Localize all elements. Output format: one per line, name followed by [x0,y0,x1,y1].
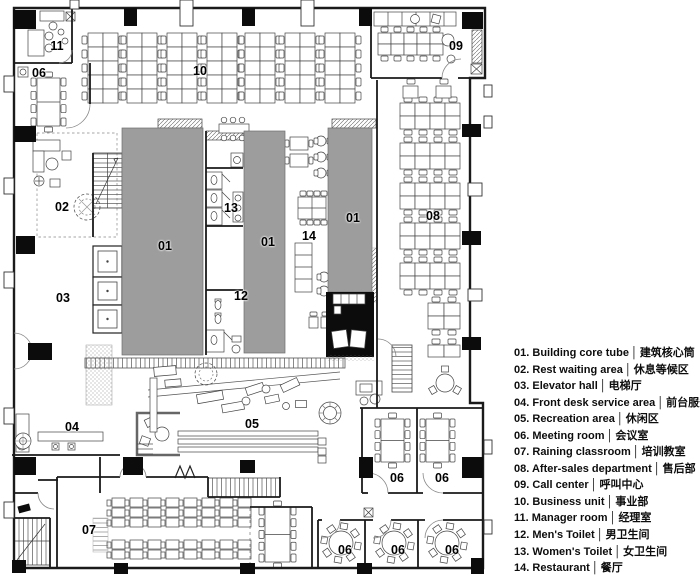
legend-en: Recreation area [532,413,615,425]
legend-num: 10 [514,496,526,508]
legend-item-08: 08. After-sales department│售后部 [514,461,700,478]
legend-sep: │ [600,380,607,392]
legend-item-13: 13. Women's Toilet│女卫生间 [514,544,700,561]
legend-item-09: 09. Call center│呼叫中心 [514,477,700,494]
legend-sep: │ [654,463,661,475]
legend-num: 11 [514,512,526,524]
utility-room-black [326,292,374,361]
legend-en: Building core tube [532,347,629,359]
legend-item-05: 05. Recreation area│休闲区 [514,411,700,428]
legend-sep: │ [592,562,599,574]
legend-item-06: 06. Meeting room│会议室 [514,428,700,445]
legend-zh: 售后部 [663,463,696,475]
legend-zh: 经理室 [618,512,651,524]
legend-sep: │ [617,413,624,425]
legend-sep: │ [607,430,614,442]
legend-sep: │ [614,546,621,558]
legend-item-12: 12. Men's Toilet│男卫生间 [514,527,700,544]
legend-num: 03 [514,380,526,392]
legend-num: 13 [514,546,526,558]
legend-num: 14 [514,562,526,574]
legend-item-01: 01. Building core tube│建筑核心筒 [514,345,700,362]
legend-item-11: 11. Manager room│经理室 [514,510,700,527]
legend-sep: │ [625,364,632,376]
legend-en: Men's Toilet [532,529,594,541]
legend-zh: 培训教室 [642,446,686,458]
legend-zh: 男卫生间 [606,529,650,541]
legend-zh: 休息等候区 [634,364,689,376]
legend-num: 12 [514,529,526,541]
legend-en: Elevator hall [532,380,597,392]
legend-sep: │ [633,446,640,458]
legend-sep: │ [610,512,617,524]
legend-sep: │ [631,347,638,359]
legend-zh: 前台服务区 [666,397,700,409]
legend-num: 07 [514,446,526,458]
desks-business-unit-10 [82,33,361,103]
legend-item-14: 14. Restaurant│餐厅 [514,560,700,575]
legend-num: 04 [514,397,526,409]
legend-en: Women's Toilet [532,546,612,558]
legend-en: Restaurant [532,562,589,574]
legend-num: 05 [514,413,526,425]
legend-sep: │ [607,496,614,508]
elevators-03 [93,246,122,333]
legend-item-10: 10. Business unit│事业部 [514,494,700,511]
legend-num: 01 [514,347,526,359]
floor-plan-drawing [0,0,510,575]
legend-zh: 呼叫中心 [600,479,644,491]
legend-en: Business unit [532,496,604,508]
legend-num: 06 [514,430,526,442]
legend-en: Raining classroom [532,446,630,458]
legend-sep: │ [597,529,604,541]
legend-en: Call center [532,479,588,491]
legend-num: 08 [514,463,526,475]
legend-zh: 女卫生间 [623,546,667,558]
legend-item-04: 04. Front desk service area│前台服务区 [514,395,700,412]
legend-zh: 建筑核心筒 [640,347,695,359]
legend-sep: │ [657,397,664,409]
legend-item-02: 02. Rest waiting area│休息等候区 [514,362,700,379]
legend-en: Front desk service area [532,397,655,409]
legend-en: After-sales department [532,463,652,475]
legend-sep: │ [591,479,598,491]
floor-plan-page: 1106100902030101011314120804050606070606… [0,0,700,575]
legend-zh: 电梯厅 [609,380,642,392]
legend-item-03: 03. Elevator hall│电梯厅 [514,378,700,395]
legend-zh: 事业部 [615,496,648,508]
legend-num: 02 [514,364,526,376]
legend-zh: 会议室 [615,430,648,442]
legend: 01. Building core tube│建筑核心筒02. Rest wai… [514,345,700,575]
legend-zh: 餐厅 [601,562,623,574]
legend-en: Rest waiting area [532,364,622,376]
legend-num: 09 [514,479,526,491]
legend-zh: 休闲区 [626,413,659,425]
legend-en: Manager room [532,512,608,524]
legend-en: Meeting room [532,430,604,442]
legend-item-07: 07. Raining classroom│培训教室 [514,444,700,461]
